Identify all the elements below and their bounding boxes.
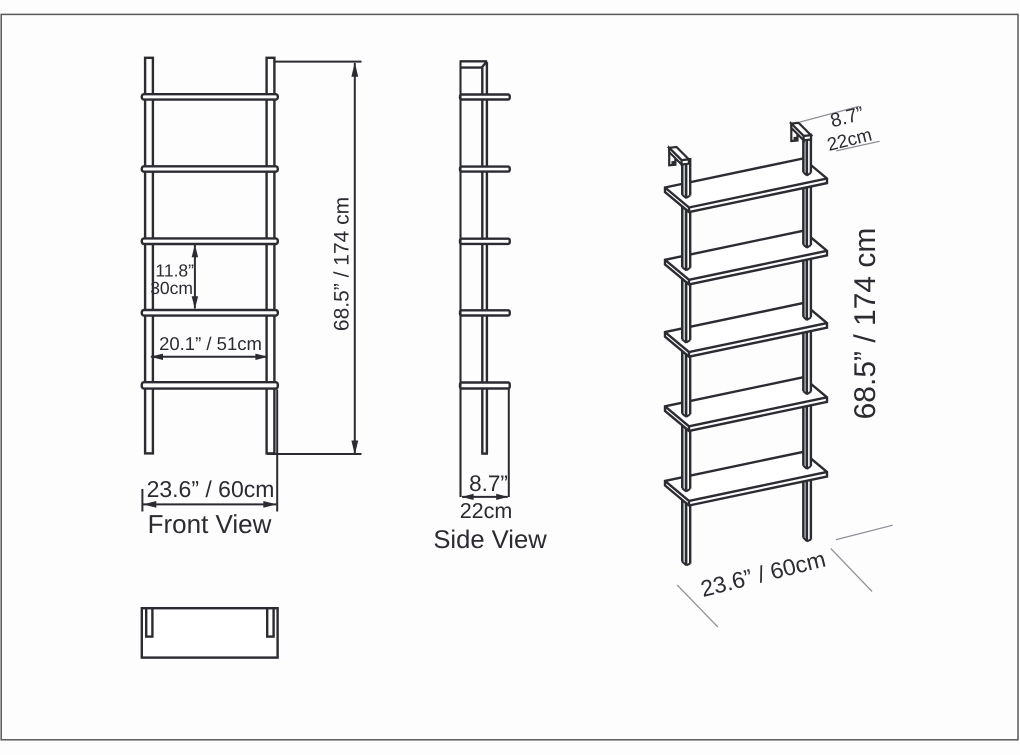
svg-text:8.7”: 8.7” xyxy=(469,471,508,496)
svg-text:68.5” / 174 cm: 68.5” / 174 cm xyxy=(849,228,882,420)
svg-text:30cm: 30cm xyxy=(150,278,193,298)
svg-text:22cm: 22cm xyxy=(460,499,513,523)
svg-text:68.5” / 174 cm: 68.5” / 174 cm xyxy=(331,197,354,331)
svg-text:20.1” / 51cm: 20.1” / 51cm xyxy=(159,333,262,354)
svg-text:Side View: Side View xyxy=(433,526,547,554)
svg-text:Front View: Front View xyxy=(148,509,272,539)
svg-text:23.6” / 60cm: 23.6” / 60cm xyxy=(147,476,275,502)
